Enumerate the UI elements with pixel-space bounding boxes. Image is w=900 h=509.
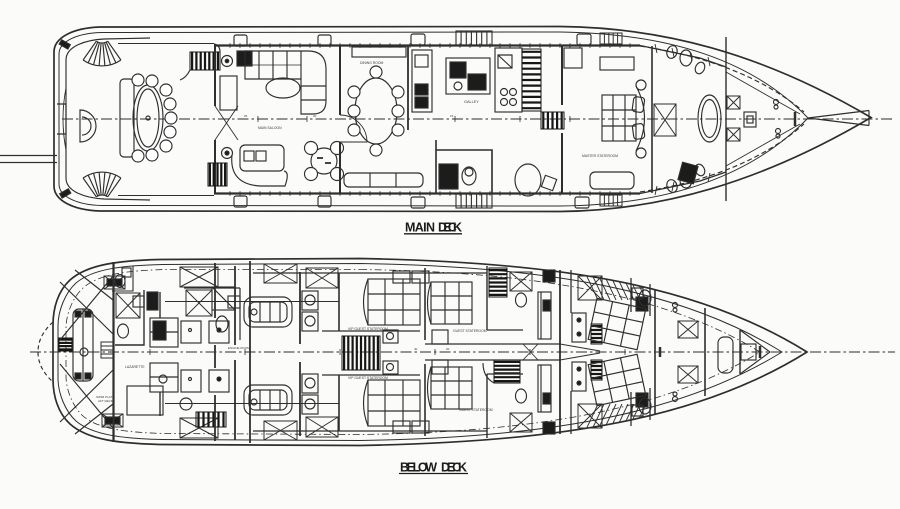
svg-text:GUEST STATEROOM: GUEST STATEROOM <box>453 329 487 333</box>
svg-text:DECK: DECK <box>438 221 462 235</box>
svg-text:GALLEY: GALLEY <box>464 100 479 104</box>
svg-text:SWIM LADR: SWIM LADR <box>102 423 120 427</box>
svg-text:MASTER STATEROOM: MASTER STATEROOM <box>582 154 618 158</box>
svg-text:DECK: DECK <box>441 461 467 475</box>
svg-text:LAZARETTE: LAZARETTE <box>125 365 145 369</box>
svg-text:VIP GUEST STATEROOM: VIP GUEST STATEROOM <box>348 376 388 380</box>
svg-text:15: 15 <box>450 114 454 118</box>
svg-text:VIP GUEST STATEROOM: VIP GUEST STATEROOM <box>348 327 388 331</box>
svg-text:20: 20 <box>313 114 317 118</box>
svg-text:25: 25 <box>244 114 248 118</box>
svg-text:MAIN: MAIN <box>405 221 435 235</box>
svg-text:AFT DECK: AFT DECK <box>98 399 113 403</box>
svg-text:20: 20 <box>446 347 450 351</box>
svg-text:MAIN SALOON: MAIN SALOON <box>258 126 282 130</box>
svg-text:ENGINE ROOM: ENGINE ROOM <box>228 346 250 350</box>
svg-text:DINING ROOM: DINING ROOM <box>360 61 384 65</box>
svg-text:40: 40 <box>414 347 418 351</box>
svg-text:BELOW: BELOW <box>400 461 437 475</box>
